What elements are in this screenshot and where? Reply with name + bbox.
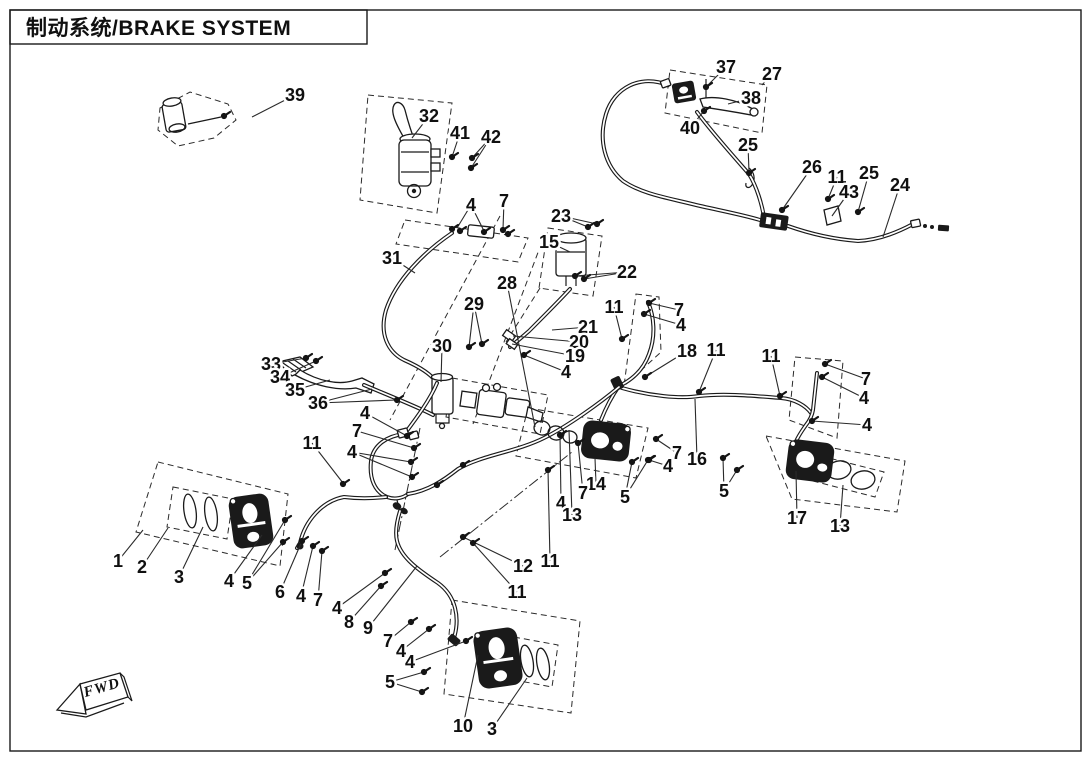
fastener-bolt <box>319 547 328 554</box>
reservoir-cap <box>556 233 586 243</box>
part-number-callout: 15 <box>539 232 559 252</box>
part-number-callout: 11 <box>761 346 780 366</box>
brake-pad <box>203 496 220 531</box>
part-number-callout: 43 <box>839 182 859 202</box>
front-master-cylinder-assembly <box>393 103 495 239</box>
part-number-callout: 11 <box>302 433 321 453</box>
fastener-bolt <box>701 107 710 114</box>
part-number-callout: 4 <box>224 571 234 591</box>
part-number-callout: 3 <box>174 567 184 587</box>
fastener-bolt <box>646 299 655 306</box>
part-number-callout: 4 <box>663 456 673 476</box>
part-number-callout: 37 <box>716 57 736 77</box>
fastener-bolt <box>470 539 479 546</box>
part-number-callout: 5 <box>242 573 252 593</box>
part-number-callout: 11 <box>507 582 526 602</box>
hose-end-fitting <box>447 633 461 647</box>
fastener-bolt <box>619 335 628 342</box>
fastener-bolt <box>408 618 417 625</box>
master-cylinder-body <box>399 140 431 186</box>
leader-line <box>410 641 466 662</box>
part-number-callout: 4 <box>676 315 686 335</box>
part-number-callout: 4 <box>859 388 869 408</box>
part-number-callout: 5 <box>620 487 630 507</box>
part-number-callout: 32 <box>419 106 439 126</box>
fastener-bolt <box>426 625 435 632</box>
fastener-bolt <box>629 458 638 465</box>
part-number-callout: 8 <box>344 612 354 632</box>
rear-right-caliper <box>785 438 836 483</box>
part-number-callout: 27 <box>762 64 782 84</box>
part-number-callout: 14 <box>586 474 606 494</box>
fastener-bolt <box>303 354 312 361</box>
part-number-callout: 4 <box>296 586 306 606</box>
part-number-callout: 36 <box>308 393 328 413</box>
leader-line <box>390 672 424 682</box>
part-number-callout: 9 <box>363 618 373 638</box>
part-number-callout: 22 <box>617 262 637 282</box>
brake-pad <box>849 469 876 492</box>
leader-line <box>365 413 407 436</box>
part-number-callout: 40 <box>680 118 700 138</box>
part-number-callout: 11 <box>706 340 725 360</box>
fastener-bolt <box>720 454 729 461</box>
fastener-bolt <box>463 637 472 644</box>
fastener-bolt <box>221 112 230 119</box>
part-number-callout: 38 <box>741 88 761 108</box>
fastener-bolt <box>642 373 651 380</box>
page-title: 制动系统/BRAKE SYSTEM <box>26 16 291 40</box>
fastener-bolt <box>505 230 514 237</box>
fwd-arrow: FWD <box>57 673 132 717</box>
fastener-bolt <box>585 223 594 230</box>
leader-line <box>822 377 864 398</box>
part-number-callout: 5 <box>385 672 395 692</box>
cable-end-connector <box>938 225 949 232</box>
lever-end-ball <box>750 108 758 116</box>
part-number-callout: 12 <box>513 556 533 576</box>
part-number-callout: 11 <box>604 297 623 317</box>
diagram-canvas: 制动系统/BRAKE SYSTEM <box>0 0 1090 760</box>
part-number-callout: 7 <box>861 369 871 389</box>
fastener-bolt <box>703 83 712 90</box>
fastener-bolt <box>734 466 743 473</box>
fastener-bolt <box>411 444 420 451</box>
fastener-bolt <box>378 582 387 589</box>
fastener-bolt <box>408 458 417 465</box>
part-number-callout: 2 <box>137 557 147 577</box>
hose16-box <box>624 294 661 386</box>
leader-line <box>352 452 412 477</box>
part-number-callout: 7 <box>672 443 682 463</box>
part-number-callout: 39 <box>285 85 305 105</box>
parking-brake-cable <box>603 78 949 241</box>
part-number-callout: 4 <box>405 652 415 672</box>
front-right-caliper-assembly <box>472 626 552 690</box>
fastener-bolt <box>545 466 554 473</box>
part-number-callout: 25 <box>738 135 758 155</box>
cable-end-fitting <box>660 78 671 88</box>
fastener-bolt <box>282 516 291 523</box>
fastener-bolt <box>421 668 430 675</box>
fastener-bolt <box>594 220 603 227</box>
leader-line <box>548 470 550 561</box>
part-number-callout: 26 <box>802 157 822 177</box>
hand-lever <box>393 103 413 138</box>
part-number-callout: 3 <box>487 719 497 739</box>
rear-steel-line <box>622 388 811 413</box>
part-number-callout: 13 <box>830 516 850 536</box>
brake-pad <box>182 493 199 528</box>
part-number-callout: 4 <box>466 195 476 215</box>
cable-adjuster <box>759 212 789 231</box>
leader-line <box>368 566 417 628</box>
fastener-bolt <box>466 343 475 350</box>
front-right-caliper <box>472 626 524 690</box>
front-left-caliper <box>228 492 275 549</box>
part-number-callout: 6 <box>275 582 285 602</box>
part-number-callout: 10 <box>453 716 473 736</box>
fastener-bolt <box>479 340 488 347</box>
fastener-bolt <box>382 569 391 576</box>
brake-pad <box>534 647 551 681</box>
part-number-callout: 7 <box>383 631 393 651</box>
part-number-callout: 42 <box>481 127 501 147</box>
fastener-bolt <box>313 357 322 364</box>
part-number-callout: 24 <box>890 175 910 195</box>
part-number-callout: 29 <box>464 294 484 314</box>
fastener-bolt <box>419 688 428 695</box>
rear-brake-line-assembly <box>601 302 817 444</box>
front-left-caliper-assembly <box>182 492 275 549</box>
part-number-callout: 4 <box>561 362 571 382</box>
construction-lines <box>136 70 905 713</box>
cable-front-run <box>697 112 764 217</box>
brake-system-diagram-page: 制动系统/BRAKE SYSTEM <box>0 0 1090 760</box>
part-number-callout: 13 <box>562 505 582 525</box>
fastener-bolt <box>310 542 319 549</box>
part-number-callout: 30 <box>432 336 452 356</box>
leader-line <box>337 573 385 608</box>
part-number-callout: 1 <box>113 551 123 571</box>
part-number-callout: 31 <box>382 248 402 268</box>
pedal-arm <box>295 370 374 393</box>
part-number-callout: 7 <box>313 590 323 610</box>
fastener-bolt <box>449 225 458 232</box>
fastener-bolt <box>855 208 864 215</box>
part-number-callout: 11 <box>540 551 559 571</box>
part-number-callout: 4 <box>332 598 342 618</box>
rear-right-caliper-assembly <box>785 438 877 491</box>
part-number-callout: 28 <box>497 273 517 293</box>
part-number-callout: 7 <box>352 421 362 441</box>
part-number-callout: 16 <box>687 449 707 469</box>
line-to-front-left <box>297 497 386 548</box>
reservoir-body <box>556 238 586 276</box>
part-number-callout: 4 <box>347 442 357 462</box>
part-number-callout: 35 <box>285 380 305 400</box>
leader-line <box>352 452 411 462</box>
part-number-callout: 7 <box>499 191 509 211</box>
fastener-bolt <box>653 435 662 442</box>
part-number-callout: 7 <box>578 483 588 503</box>
fastener-bolt <box>280 538 289 545</box>
fastener-bolt <box>641 310 650 317</box>
leader-line <box>825 364 866 379</box>
front-left-pads-box <box>167 487 233 539</box>
part-number-callout: 4 <box>862 415 872 435</box>
part-number-callout: 5 <box>719 481 729 501</box>
part-number-callout: 41 <box>450 123 470 143</box>
part-number-callout: 18 <box>677 341 697 361</box>
part-number-callout: 17 <box>787 508 807 528</box>
rear-left-caliper <box>580 420 632 463</box>
part-number-callout: 23 <box>551 206 571 226</box>
leader-line <box>524 355 566 372</box>
part-number-callout: 25 <box>859 163 879 183</box>
part-number-callout: 4 <box>360 403 370 423</box>
sensor-bracket-39 <box>162 96 221 133</box>
leader-line <box>812 421 867 425</box>
